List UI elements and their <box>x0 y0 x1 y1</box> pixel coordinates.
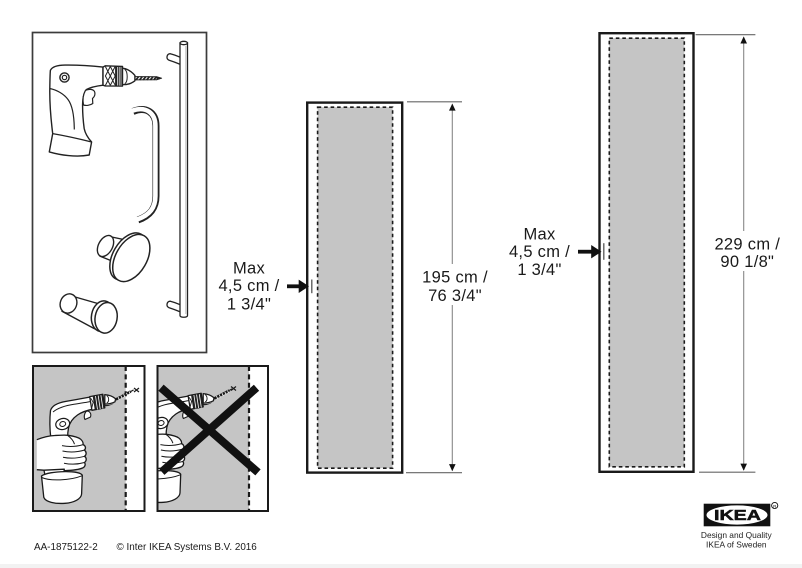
svg-text:Max: Max <box>523 226 556 244</box>
svg-text:IKEA of Sweden: IKEA of Sweden <box>706 540 767 550</box>
svg-text:90 1/8": 90 1/8" <box>720 253 774 271</box>
svg-text:© Inter IKEA Systems B.V. 2016: © Inter IKEA Systems B.V. 2016 <box>117 542 258 553</box>
svg-text:76 3/4": 76 3/4" <box>428 287 482 305</box>
svg-text:4,5 cm /: 4,5 cm / <box>218 277 279 295</box>
svg-text:IKEA: IKEA <box>714 508 762 524</box>
svg-text:229 cm /: 229 cm / <box>714 235 780 253</box>
svg-text:1 3/4": 1 3/4" <box>517 261 561 279</box>
svg-text:1 3/4": 1 3/4" <box>227 296 271 314</box>
svg-text:195 cm /: 195 cm / <box>422 269 488 287</box>
svg-text:AA-1875122-2: AA-1875122-2 <box>34 542 98 553</box>
svg-text:4,5 cm /: 4,5 cm / <box>509 243 570 261</box>
svg-text:Max: Max <box>233 259 266 277</box>
